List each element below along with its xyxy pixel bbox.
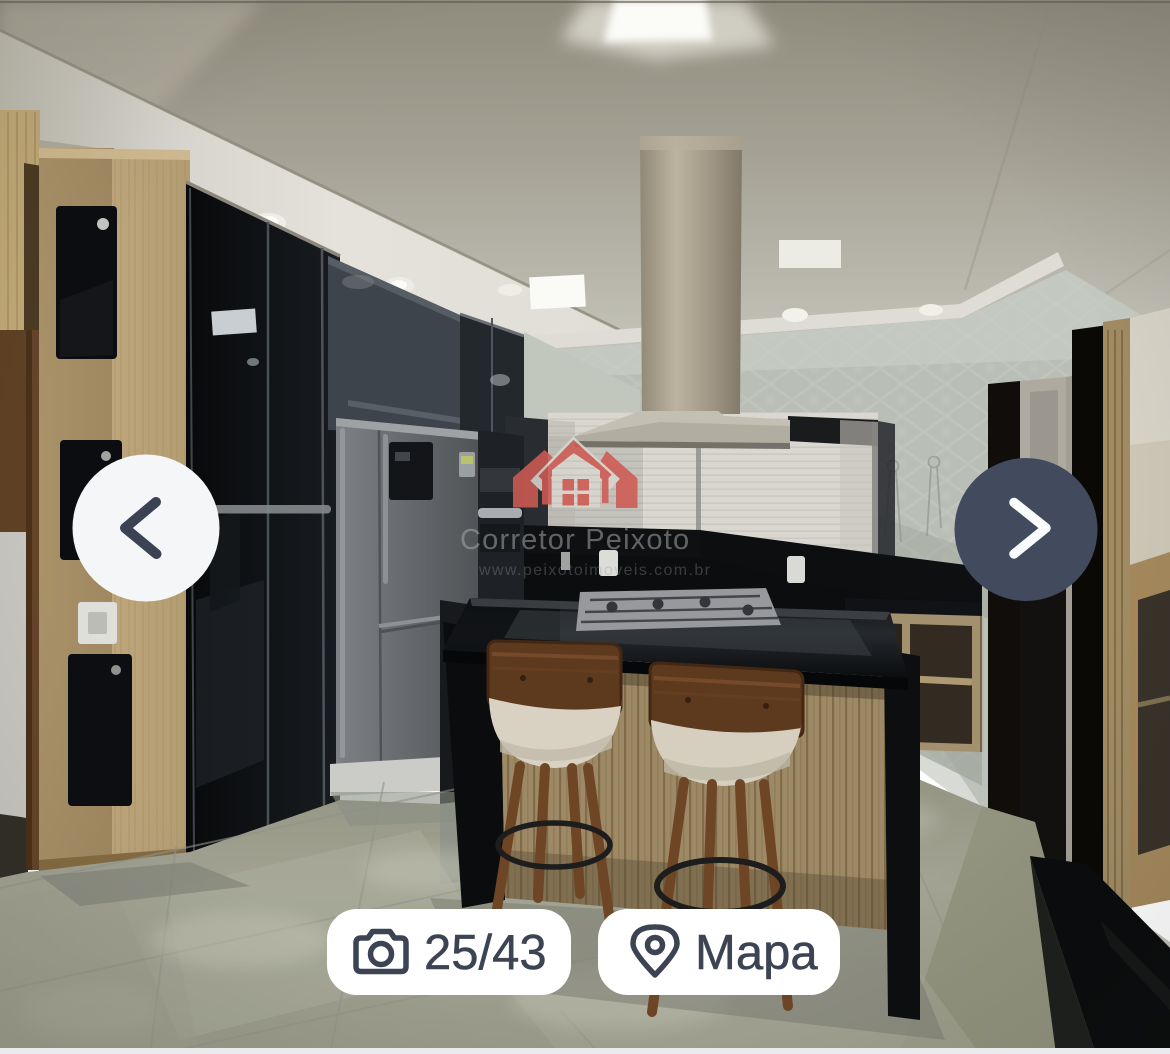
svg-text:Mapa: Mapa [695,926,818,980]
svg-text:25/43: 25/43 [424,926,547,980]
